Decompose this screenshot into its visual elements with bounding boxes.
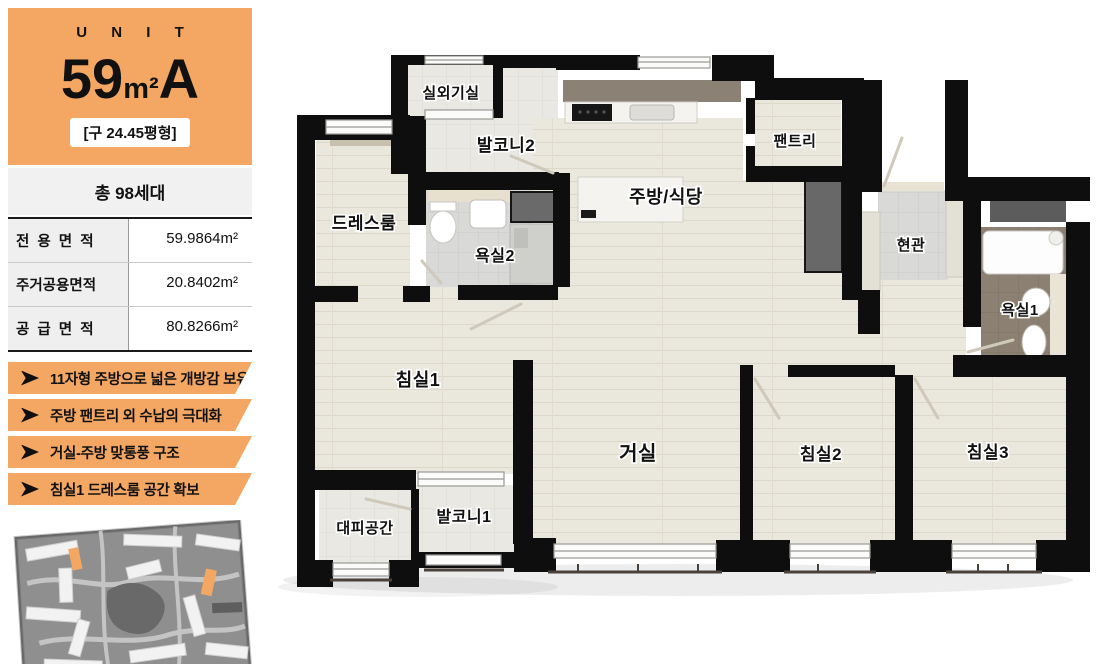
arrow-icon xyxy=(21,371,39,386)
feature-ribbon: 11자형 주방으로 넓은 개방감 보유 xyxy=(8,362,252,394)
room-label-bathroom-2: 욕실2 xyxy=(475,247,515,265)
feature-ribbon: 거실-주방 맞통풍 구조 xyxy=(8,436,252,468)
arrow-icon xyxy=(21,408,39,423)
feature-ribbon: 주방 팬트리 외 수납의 극대화 xyxy=(8,399,252,431)
site-map-graphic xyxy=(8,520,252,664)
arrow-icon xyxy=(21,445,39,460)
room-label-entrance: 현관 xyxy=(897,237,926,254)
unit-size: 59m²A xyxy=(8,51,252,107)
households-total: 총 98세대 xyxy=(8,168,252,215)
room-label-balcony-1: 발코니1 xyxy=(436,508,491,526)
area-table: 전 용 면 적59.9864m²주거공용면적20.8402m²공 급 면 적80… xyxy=(8,217,252,352)
area-table-row: 전 용 면 적59.9864m² xyxy=(8,219,252,262)
sidebar: U N I T 59m²A [구 24.45평형] 총 98세대 전 용 면 적… xyxy=(8,8,252,664)
room-label-living-room: 거실 xyxy=(619,442,657,465)
room-label-kitchen-dining: 주방/식당 xyxy=(629,187,703,207)
unit-size-number: 59 xyxy=(61,47,123,110)
room-label-dress-room: 드레스룸 xyxy=(332,214,397,233)
room-label-bathroom-1: 욕실1 xyxy=(1001,302,1038,319)
room-label-refuge-space: 대피공간 xyxy=(336,520,393,537)
area-table-row: 주거공용면적20.8402m² xyxy=(8,262,252,306)
room-label-bedroom-2: 침실2 xyxy=(800,444,842,464)
feature-list: 11자형 주방으로 넓은 개방감 보유주방 팬트리 외 수납의 극대화거실-주방… xyxy=(8,362,252,505)
area-label: 공 급 면 적 xyxy=(8,307,129,350)
feature-text: 주방 팬트리 외 수납의 극대화 xyxy=(50,405,221,426)
area-table-row: 공 급 면 적80.8266m² xyxy=(8,306,252,350)
feature-ribbon: 침실1 드레스룸 공간 확보 xyxy=(8,473,252,505)
room-label-pantry: 팬트리 xyxy=(774,133,817,150)
area-value: 59.9864m² xyxy=(129,219,252,262)
unit-plan-page: U N I T 59m²A [구 24.45평형] 총 98세대 전 용 면 적… xyxy=(0,0,1100,664)
floorplan-svg: 실외기실발코니2드레스룸욕실2주방/식당팬트리현관욕실1침실1거실침실2침실3대… xyxy=(278,52,1098,597)
unit-badge: U N I T 59m²A [구 24.45평형] xyxy=(8,8,252,165)
unit-size-unit: m² xyxy=(123,73,158,105)
old-area-badge: [구 24.45평형] xyxy=(70,118,189,147)
area-value: 20.8402m² xyxy=(129,263,252,306)
room-label-bedroom-1: 침실1 xyxy=(396,370,441,390)
room-label-balcony-2: 발코니2 xyxy=(477,136,535,155)
area-label: 전 용 면 적 xyxy=(8,219,129,262)
feature-text: 침실1 드레스룸 공간 확보 xyxy=(50,479,199,500)
arrow-icon xyxy=(21,482,39,497)
unit-label: U N I T xyxy=(8,24,252,41)
area-label: 주거공용면적 xyxy=(8,263,129,306)
feature-text: 11자형 주방으로 넓은 개방감 보유 xyxy=(50,368,249,389)
room-label-outdoor-unit-room: 실외기실 xyxy=(422,84,479,102)
unit-type-letter: A xyxy=(159,47,199,110)
area-value: 80.8266m² xyxy=(129,307,252,350)
room-label-bedroom-3: 침실3 xyxy=(967,442,1009,462)
feature-text: 거실-주방 맞통풍 구조 xyxy=(50,442,179,463)
